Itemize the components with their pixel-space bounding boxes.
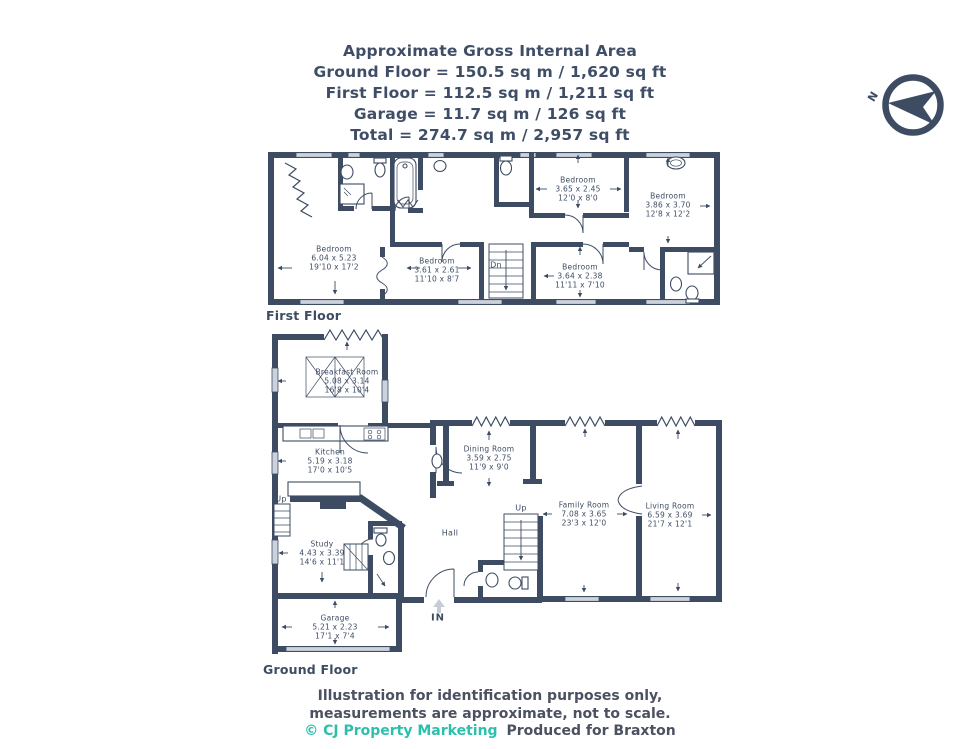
bathtub-icon [394,158,416,208]
room-label-study: Study4.43 x 3.3914'6 x 11'1 [299,540,344,567]
room-label-dining-room: Dining Room3.59 x 2.7511'9 x 9'0 [464,445,515,472]
window [272,368,278,392]
window-zigzag [657,417,695,426]
french-doors [618,486,642,514]
ensuite-fixtures [340,158,386,204]
stairs-up-left [274,504,290,536]
floorplan-page: Approximate Gross Internal Area Ground F… [0,0,980,749]
window [300,300,344,305]
stairs-corner-study [344,544,368,570]
room-label-bedroom-2: Bedroom3.61 x 2.6111'10 x 8'7 [414,257,459,284]
window [348,153,360,158]
hall-wc-fixtures [486,573,528,589]
toilet-icon [500,156,512,161]
sink-icon [384,552,395,565]
stairs-up-label-2: Up [275,495,287,504]
disclaimer-line-1: Illustration for identification purposes… [0,688,980,706]
shower-icon [688,252,714,274]
marketing-credit: © CJ Property Marketing [304,723,497,739]
floorplan-drawing [0,0,980,749]
hall-label: Hall [442,529,459,538]
room-label-bedroom-4: Bedroom3.86 x 3.7012'8 x 12'2 [645,192,690,219]
toilet-icon [374,528,387,533]
stairs-down-label: Dn [490,261,502,270]
window [382,380,388,402]
ground-floor-title: Ground Floor [263,662,358,677]
window [556,300,596,305]
kitchen-island [288,482,360,496]
wc-fixtures [500,156,512,175]
entry-arrow-icon [433,599,445,613]
toilet-icon [686,286,698,300]
window [272,540,278,564]
garage-door [286,647,390,652]
first-floor-title: First Floor [266,308,341,323]
front-door-arc [426,569,454,597]
stairs-up-hall [504,514,538,570]
room-label-kitchen: Kitchen5.19 x 3.1817'0 x 10'5 [307,448,352,475]
window [650,597,690,602]
sink-icon [486,573,498,587]
stairs-up-label: Up [515,504,527,513]
disclaimer: Illustration for identification purposes… [0,688,980,741]
sink-icon [671,277,682,291]
sink-icon [434,161,446,172]
window [646,300,690,305]
toilet-icon [374,158,386,163]
window-zigzag [565,417,605,426]
bay-window-zigzag [324,330,384,340]
window [565,597,599,602]
window [646,153,690,158]
window [458,300,502,305]
window [296,153,332,158]
room-label-bedroom-5: Bedroom3.64 x 2.3811'11 x 7'10 [555,263,605,290]
top-right-sink [667,157,685,169]
room-label-living-room: Living Room6.59 x 3.6921'7 x 12'1 [646,502,695,529]
room-label-bedroom-1: Bedroom6.04 x 5.2319'10 x 17'2 [309,245,359,272]
window [272,452,278,474]
door-arc [464,572,478,586]
entrance-label: IN [431,613,445,624]
produced-for: Produced for Braxton [506,723,675,739]
room-label-garage: Garage5.21 x 2.2317'1 x 7'4 [312,614,357,641]
toilet-icon [509,577,521,589]
first-floor-plan [268,152,720,305]
shower-icon [340,184,364,204]
stairs-down [489,244,523,298]
room-label-bedroom-3: Bedroom3.65 x 2.4512'0 x 8'0 [555,176,600,203]
sink-icon [341,165,353,179]
window [556,153,592,158]
sloped-ceiling-line [285,163,312,217]
sink-icon [667,157,685,169]
credit-line: © CJ Property Marketing Produced for Bra… [0,723,980,741]
room-label-family-room: Family Room7.08 x 3.6523'3 x 12'0 [559,501,610,528]
disclaimer-line-2: measurements are approximate, not to sca… [0,706,980,724]
window [428,153,444,158]
first-floor-bathroom-fixtures [671,252,715,303]
sink-icon [432,454,442,468]
room-label-breakfast-room: Breakfast Room5.08 x 3.1416'8 x 10'4 [316,368,379,395]
window-zigzag [472,417,510,426]
study-bathroom-fixtures [374,528,395,586]
